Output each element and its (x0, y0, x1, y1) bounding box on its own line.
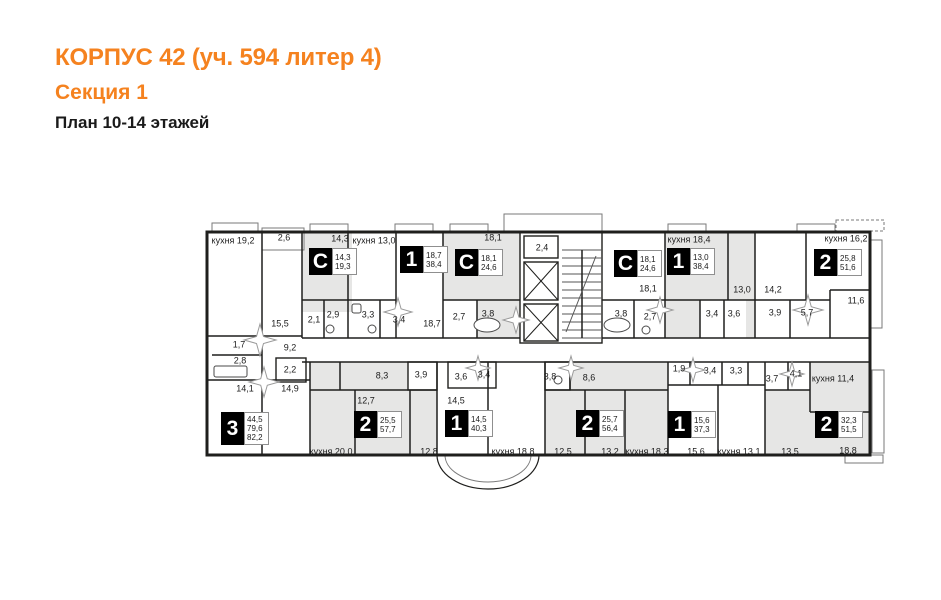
floor-plan-drawing (0, 0, 941, 600)
entrance-door-mark (249, 367, 279, 397)
floor-plan-page: КОРПУС 42 (уч. 594 литер 4) Секция 1 Пла… (0, 0, 941, 600)
entrance-door-mark (244, 324, 276, 356)
entrance-door-mark (466, 356, 490, 380)
entrance-door-mark (384, 298, 412, 326)
